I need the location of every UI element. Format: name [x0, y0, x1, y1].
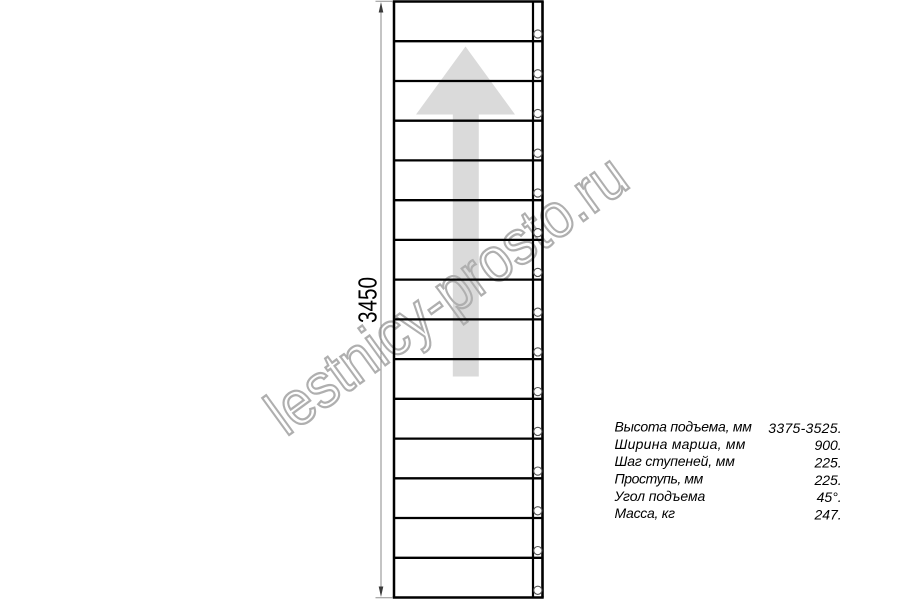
svg-text:Шаг ступеней, мм: Шаг ступеней, мм [615, 453, 736, 469]
svg-text:247.: 247. [813, 506, 841, 522]
svg-text:Угол подъема: Угол подъема [614, 488, 706, 504]
svg-text:3450: 3450 [353, 277, 383, 323]
svg-text:225.: 225. [813, 455, 841, 471]
svg-text:Проступь, мм: Проступь, мм [615, 471, 704, 487]
svg-text:45°.: 45°. [817, 489, 842, 505]
svg-text:3375-3525.: 3375-3525. [768, 420, 841, 436]
svg-text:900.: 900. [814, 437, 841, 453]
svg-text:225.: 225. [813, 472, 841, 488]
svg-text:Высота подъема, мм: Высота подъема, мм [615, 419, 753, 435]
svg-text:Масса, кг: Масса, кг [615, 505, 676, 521]
svg-text:Ширина марша, мм: Ширина марша, мм [615, 436, 746, 452]
